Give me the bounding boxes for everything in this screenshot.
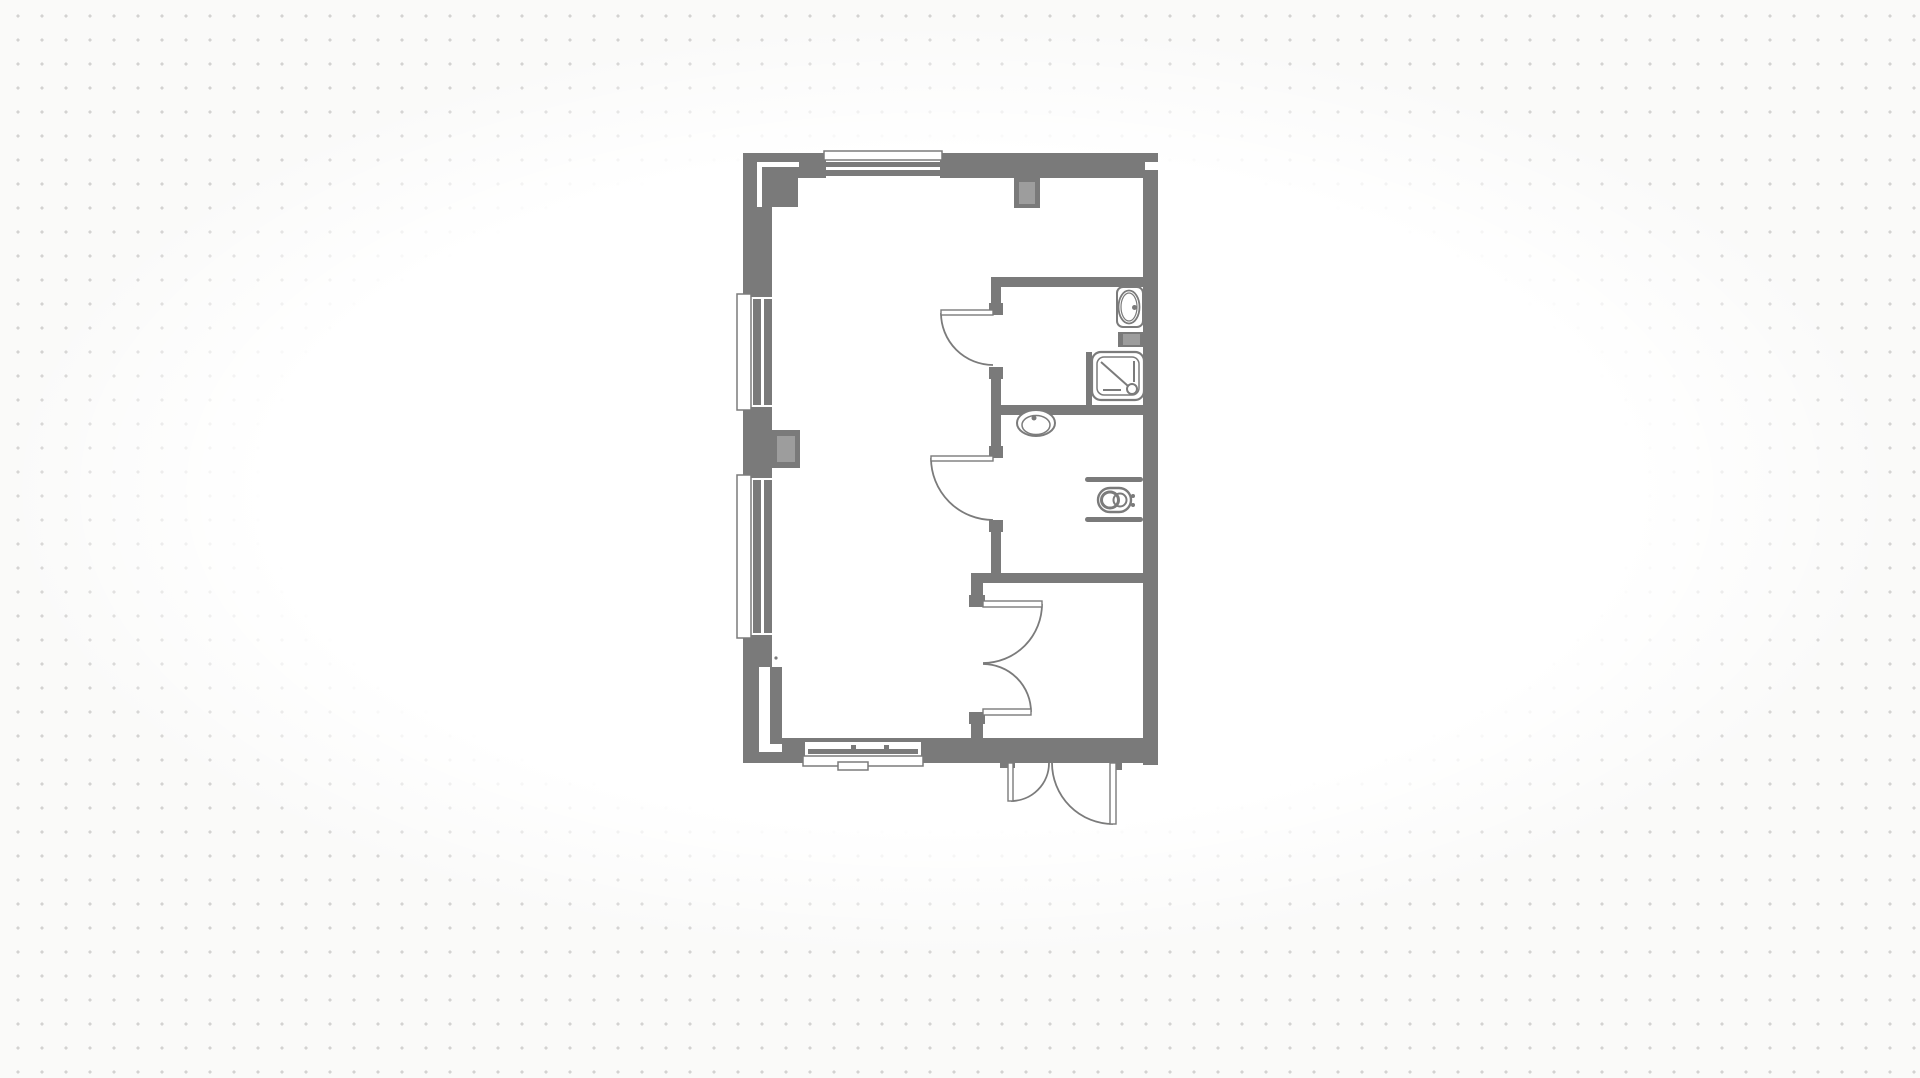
window-left-lower[interactable]	[737, 475, 772, 638]
window-left-upper[interactable]	[737, 294, 772, 410]
canvas-background[interactable]	[0, 0, 1920, 1078]
shower[interactable]	[1086, 352, 1144, 405]
notch-right-wall-top	[1145, 162, 1158, 170]
wall-interior-entry-north[interactable]	[971, 573, 1143, 583]
toilet[interactable]	[1117, 287, 1143, 327]
basin[interactable]	[1017, 410, 1055, 436]
pilaster-bottom-left[interactable]	[759, 656, 782, 752]
wall-interior-shower-room-north[interactable]	[991, 277, 1143, 287]
wall-exterior-top[interactable]	[743, 153, 1158, 178]
pier-mid-left[interactable]	[772, 430, 800, 468]
wall-interior-between-bathrooms[interactable]	[991, 405, 1143, 415]
flue-top-wall[interactable]	[1014, 178, 1040, 208]
duct-shower-room[interactable]	[1118, 332, 1145, 347]
window-bottom[interactable]	[803, 742, 923, 770]
entry-door-double-leaf[interactable]	[1000, 763, 1125, 829]
window-top[interactable]	[824, 151, 942, 178]
wall-exterior-right[interactable]	[1143, 153, 1158, 765]
floorplan-svg	[0, 0, 1920, 1078]
